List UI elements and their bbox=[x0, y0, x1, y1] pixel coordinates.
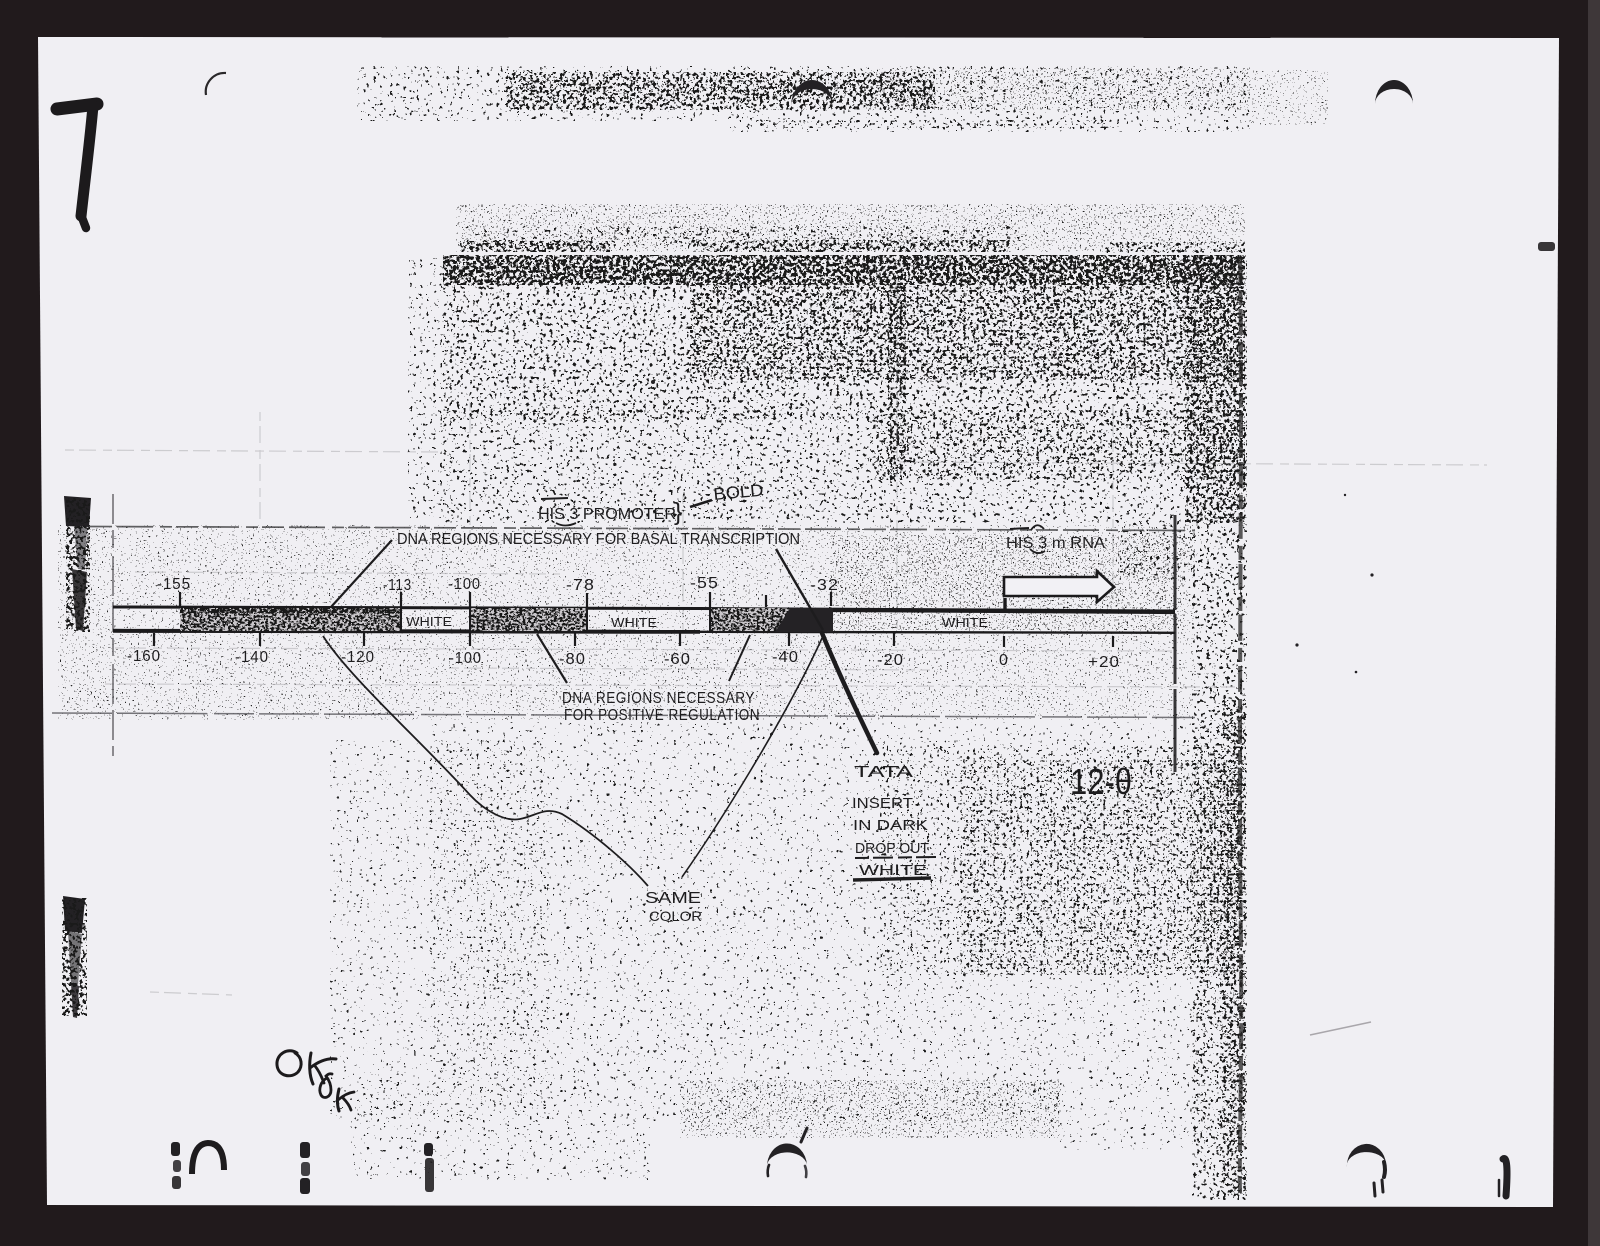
svg-text:IN DARK: IN DARK bbox=[853, 818, 928, 834]
svg-text:0: 0 bbox=[999, 652, 1009, 669]
svg-text:SAME: SAME bbox=[645, 890, 701, 907]
svg-text:WHITE: WHITE bbox=[859, 862, 927, 879]
svg-text:-20: -20 bbox=[877, 652, 904, 669]
svg-text:-32: -32 bbox=[810, 577, 839, 594]
svg-text:-100: -100 bbox=[449, 650, 482, 667]
svg-text:WHITE: WHITE bbox=[406, 614, 452, 629]
svg-text:DNA REGIONS NECESSARY: DNA REGIONS NECESSARY bbox=[562, 690, 755, 707]
svg-text:WHITE: WHITE bbox=[942, 615, 988, 630]
svg-text:COLOR: COLOR bbox=[649, 908, 702, 924]
svg-text:-78: -78 bbox=[566, 577, 595, 594]
svg-text:FOR POSITIVE REGULATION: FOR POSITIVE REGULATION bbox=[564, 707, 760, 724]
svg-text:-120: -120 bbox=[341, 649, 375, 666]
svg-text:INSERT: INSERT bbox=[852, 796, 913, 812]
svg-text:-160: -160 bbox=[127, 648, 161, 665]
svg-text:}: } bbox=[674, 498, 682, 526]
svg-text:-55: -55 bbox=[690, 575, 719, 592]
svg-text:HIS 3 m RNA: HIS 3 m RNA bbox=[1006, 535, 1105, 552]
svg-text:-140: -140 bbox=[235, 649, 269, 666]
svg-text:-80: -80 bbox=[559, 651, 586, 668]
svg-text:-60: -60 bbox=[664, 651, 691, 668]
svg-text:-40: -40 bbox=[772, 649, 799, 666]
svg-text:+20: +20 bbox=[1088, 654, 1120, 671]
svg-text:WHITE: WHITE bbox=[611, 615, 657, 630]
svg-text:12-θ: 12-θ bbox=[1070, 761, 1132, 802]
svg-text:-100: -100 bbox=[448, 576, 481, 593]
svg-text:-155: -155 bbox=[157, 576, 191, 593]
svg-text:-113: -113 bbox=[383, 577, 412, 594]
svg-text:HIS 3 PROMOTER: HIS 3 PROMOTER bbox=[538, 506, 676, 523]
svg-text:TATA: TATA bbox=[854, 764, 914, 781]
svg-text:DNA REGIONS NECESSARY FOR BASA: DNA REGIONS NECESSARY FOR BASAL TRANSCRI… bbox=[397, 531, 800, 548]
svg-text:DROP OUT: DROP OUT bbox=[855, 841, 929, 857]
